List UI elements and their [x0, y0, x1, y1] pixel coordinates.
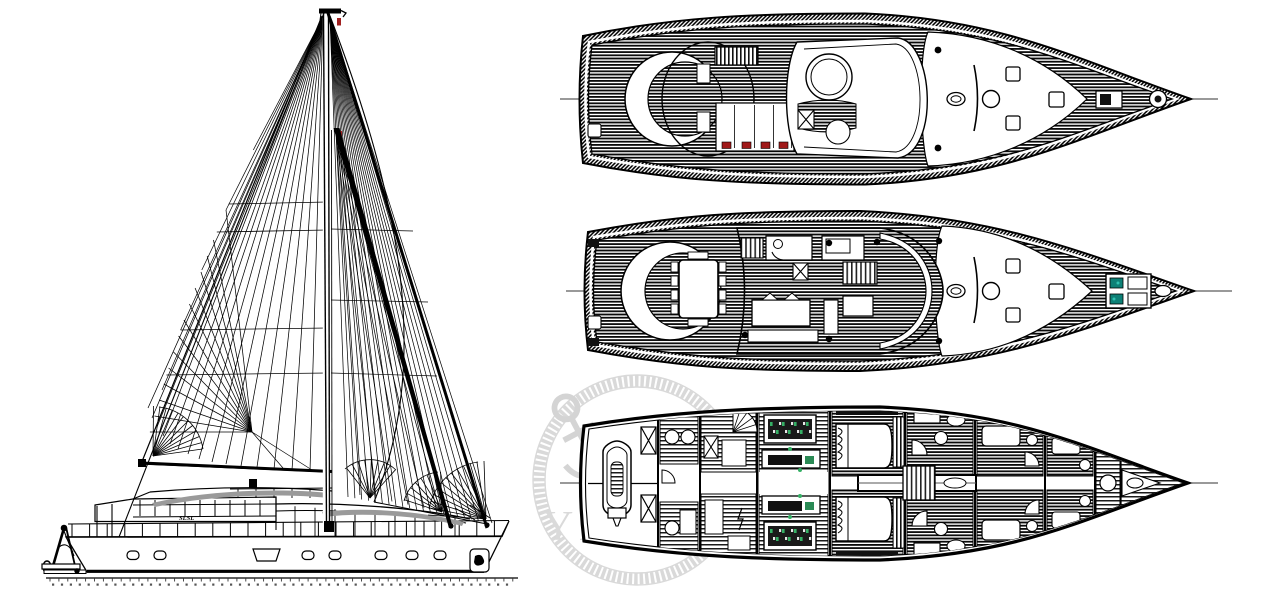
svg-text:SLSL: SLSL	[179, 515, 194, 522]
